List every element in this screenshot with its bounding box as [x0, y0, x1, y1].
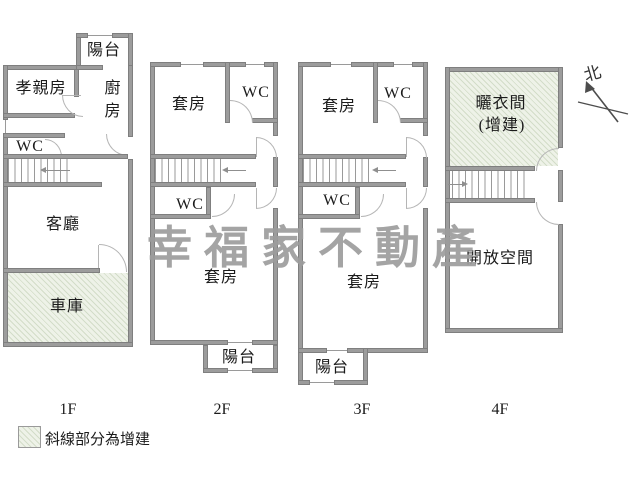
arrow-head-icon — [40, 167, 46, 173]
wall — [423, 62, 428, 136]
door-arc — [256, 188, 277, 209]
door-leaf — [256, 137, 257, 157]
door-threshold — [228, 340, 252, 345]
watermark: 幸福家不動產 — [147, 211, 489, 276]
wall — [3, 113, 75, 118]
room-label-drying: 曬衣間 — [475, 95, 526, 113]
stairs-arrow — [448, 184, 462, 185]
wall — [252, 118, 278, 123]
door-arc — [378, 100, 401, 123]
door-arc — [536, 202, 559, 225]
room-label-suite-front: 套房 — [322, 98, 356, 116]
door-arc — [406, 188, 427, 209]
arrow-head-icon — [372, 167, 378, 173]
window — [181, 62, 203, 67]
floor-label-3f: 3F — [354, 401, 371, 419]
legend-swatch — [18, 426, 41, 448]
door-arc — [256, 137, 277, 158]
door-arc — [406, 137, 427, 158]
wall — [150, 62, 181, 67]
room-label-wc-front: WC — [242, 84, 270, 102]
wall — [3, 342, 133, 347]
wall — [3, 65, 79, 70]
door-leaf — [406, 188, 407, 208]
arrow-head-icon — [222, 167, 228, 173]
wall — [128, 65, 133, 137]
room-label-wc-front: WC — [384, 85, 412, 103]
floor-label-4f: 4F — [492, 401, 509, 419]
wall — [273, 62, 278, 136]
wall — [347, 348, 428, 353]
door-arc — [106, 134, 128, 156]
window — [246, 62, 264, 67]
room-label-wc-mid: WC — [323, 192, 351, 210]
north-arrow-line — [590, 86, 618, 122]
stairs-arrow — [378, 170, 396, 171]
wall — [76, 33, 88, 38]
room-label-drying-note: (增建) — [479, 117, 526, 135]
wall — [252, 368, 278, 373]
floor-label-2f: 2F — [214, 401, 231, 419]
wall — [445, 198, 535, 203]
wall — [150, 340, 228, 345]
legend-text: 斜線部分為增建 — [45, 428, 150, 449]
room-label-garage: 車庫 — [50, 298, 84, 316]
wall — [445, 328, 563, 333]
wall — [334, 380, 368, 385]
door-leaf — [256, 188, 257, 208]
window — [88, 33, 112, 38]
wall — [3, 65, 8, 120]
north-label: 北 — [582, 62, 604, 85]
room-label-balcony: 陽台 — [222, 349, 256, 367]
floor-label-1f: 1F — [60, 401, 77, 419]
wall — [128, 159, 133, 347]
room-label-balcony: 陽台 — [315, 359, 349, 377]
wall — [298, 348, 327, 353]
wall — [76, 65, 103, 70]
wall — [298, 380, 310, 385]
door-arc — [230, 100, 253, 123]
stairs — [155, 159, 223, 182]
window — [331, 62, 351, 67]
room-label-kitchen: 廚房 — [103, 77, 122, 123]
wall — [558, 224, 563, 333]
wall — [273, 157, 278, 187]
wall — [150, 182, 256, 187]
wall — [558, 170, 563, 202]
door-leaf — [406, 137, 407, 157]
compass: 北 — [572, 56, 632, 136]
arrow-head-icon — [462, 181, 468, 187]
wall — [203, 368, 228, 373]
wall — [3, 182, 102, 187]
wall — [298, 182, 406, 187]
wall — [298, 62, 331, 67]
stairs-arrow — [46, 170, 70, 171]
wall — [400, 118, 428, 123]
room-label-balcony: 陽台 — [87, 42, 121, 60]
floor-plan: 陽台 孝親房 廚房 WC 客廳 — [0, 0, 640, 480]
room-label-living: 客廳 — [46, 216, 80, 234]
window — [3, 120, 8, 133]
door-threshold — [327, 348, 347, 353]
door-arc — [99, 244, 127, 272]
room-label-elder: 孝親房 — [15, 80, 66, 98]
wall — [74, 69, 79, 97]
wall — [558, 67, 563, 148]
room-label-suite-rear: 套房 — [347, 274, 381, 292]
stairs — [303, 159, 371, 182]
window — [228, 368, 252, 373]
window — [310, 380, 334, 385]
wall — [150, 62, 155, 345]
window — [394, 62, 412, 67]
stairs-arrow — [228, 170, 246, 171]
wall — [423, 157, 428, 187]
room-label-suite-front: 套房 — [172, 96, 206, 114]
